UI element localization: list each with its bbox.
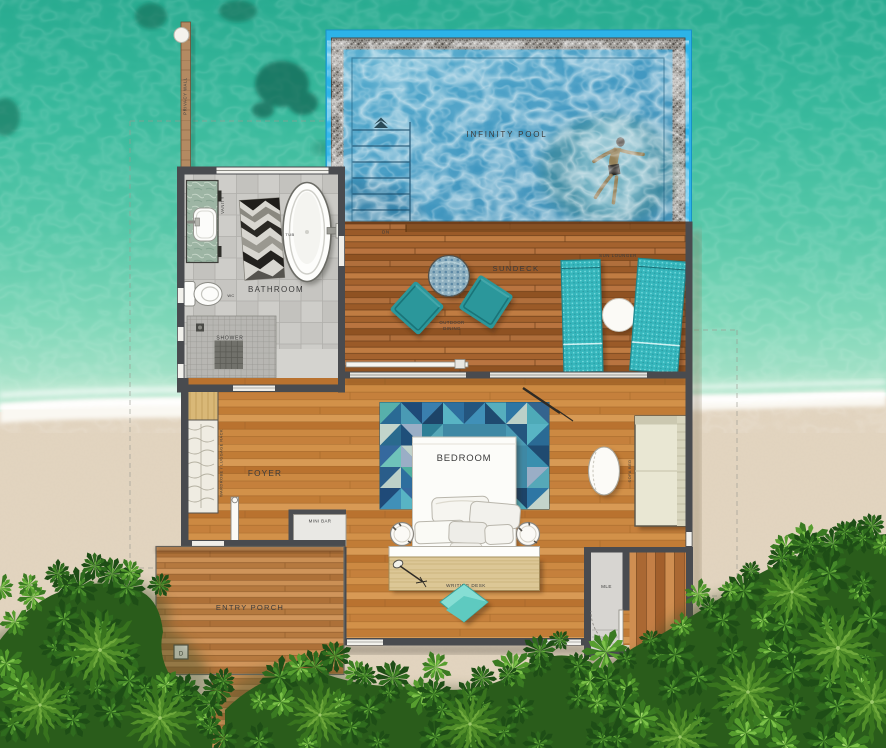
svg-text:SUNDECK: SUNDECK: [493, 264, 540, 273]
svg-text:OUTDOOR: OUTDOOR: [439, 320, 464, 325]
svg-text:INFINITY POOL: INFINITY POOL: [466, 130, 547, 139]
svg-text:MINI BAR: MINI BAR: [309, 519, 332, 524]
svg-text:VANITY: VANITY: [220, 196, 225, 214]
svg-text:WARDROBE / LUGGAGE RACK: WARDROBE / LUGGAGE RACK: [219, 429, 224, 497]
svg-text:MLE: MLE: [601, 584, 612, 589]
svg-text:SHOWER: SHOWER: [216, 336, 243, 342]
svg-text:ENTRY PORCH: ENTRY PORCH: [216, 603, 284, 612]
svg-text:DINING: DINING: [443, 326, 461, 331]
svg-text:BATHROOM: BATHROOM: [248, 285, 304, 294]
svg-text:SOFA BED: SOFA BED: [627, 460, 632, 483]
svg-text:SUN LOUNGER: SUN LOUNGER: [599, 253, 637, 258]
svg-text:DN: DN: [382, 230, 390, 235]
svg-text:FOYER: FOYER: [248, 469, 282, 478]
svg-text:BEDROOM: BEDROOM: [437, 453, 492, 464]
svg-text:TUB: TUB: [285, 232, 294, 237]
svg-text:WC: WC: [227, 293, 234, 298]
svg-text:PRIVACY WALL: PRIVACY WALL: [183, 77, 188, 115]
